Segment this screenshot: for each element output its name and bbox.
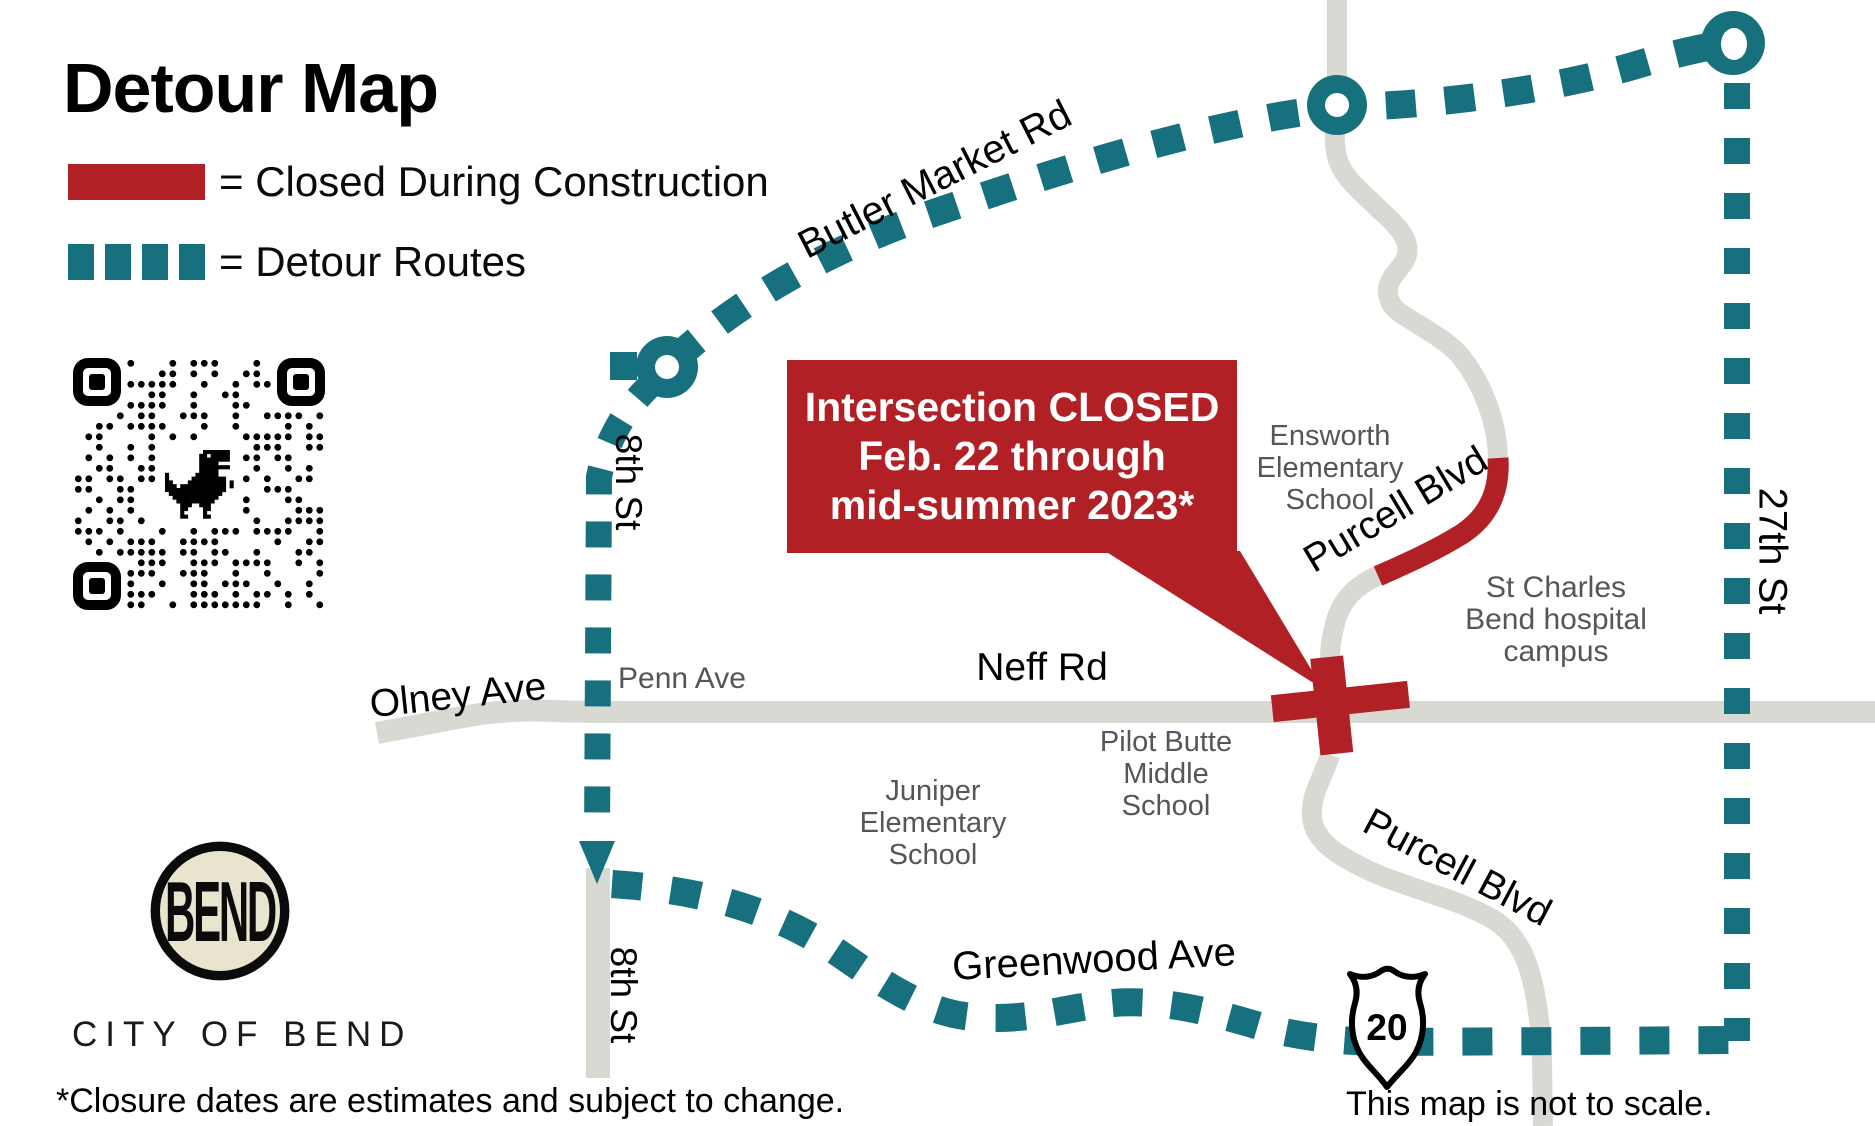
- place-juniper: Juniper Elementary School: [860, 775, 1007, 871]
- callout-tail: [1105, 551, 1323, 689]
- footnote-closure: *Closure dates are estimates and subject…: [56, 1082, 844, 1121]
- closure-callout: Intersection CLOSED Feb. 22 through mid-…: [787, 360, 1237, 553]
- place-ensworth: Ensworth Elementary School: [1257, 420, 1404, 516]
- footnote-scale: This map is not to scale.: [1346, 1085, 1713, 1124]
- road-label-8th-lower: 8th St: [602, 947, 644, 1044]
- place-pilot-butte: Pilot Butte Middle School: [1100, 726, 1232, 822]
- detour-swatch: [68, 244, 205, 280]
- logo-caption: CITY OF BEND: [72, 1015, 412, 1055]
- bend-logo: BEND: [145, 835, 295, 987]
- legend-closed-label: = Closed During Construction: [219, 158, 769, 206]
- detour-dash-icon: [68, 244, 94, 280]
- callout-line: mid-summer 2023*: [787, 481, 1237, 530]
- page-title: Detour Map: [63, 48, 438, 128]
- detour-dash-icon: [142, 244, 168, 280]
- detour-route-butler-market: [674, 43, 1733, 360]
- detour-dash-icon: [105, 244, 131, 280]
- detour-dash-icon: [179, 244, 205, 280]
- shield-number: 20: [1366, 1007, 1407, 1048]
- callout-line: Intersection CLOSED: [787, 383, 1237, 432]
- qr-code: [73, 358, 325, 610]
- logo-monogram: BEND: [165, 865, 276, 960]
- roundabout-stub: [610, 352, 637, 380]
- legend-closed-row: = Closed During Construction: [68, 158, 769, 206]
- road-label-neff: Neff Rd: [976, 646, 1108, 690]
- road-label-8th-upper: 8th St: [607, 434, 649, 531]
- legend-detour-row: = Detour Routes: [68, 238, 526, 286]
- dino-icon: [165, 450, 234, 519]
- place-st-charles: St Charles Bend hospital campus: [1465, 572, 1647, 668]
- legend-detour-label: = Detour Routes: [219, 238, 526, 286]
- callout-line: Feb. 22 through: [787, 432, 1237, 481]
- closed-swatch: [68, 164, 205, 200]
- road-label-penn: Penn Ave: [618, 662, 746, 696]
- road-label-27th: 27th St: [1750, 488, 1795, 615]
- us-20-shield-icon: 20: [1350, 969, 1425, 1087]
- road-purcell-south: [1312, 755, 1543, 1126]
- detour-map-page: 20 Detour Map = Closed During Constructi…: [0, 0, 1875, 1126]
